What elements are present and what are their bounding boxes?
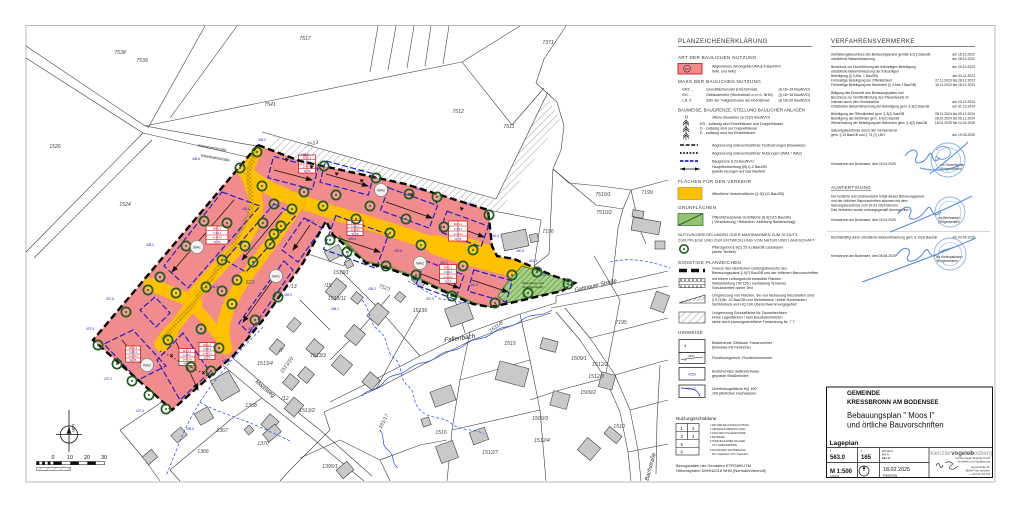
svg-text:W. 78: W. 78 — [352, 232, 359, 236]
svg-text:439.1: 439.1 — [306, 219, 314, 223]
svg-text:AUSFERTIGUNG: AUSFERTIGUNG — [831, 185, 871, 190]
svg-text:WA1 und WA2: WA1 und WA2 — [712, 70, 736, 74]
svg-text:7510/2: 7510/2 — [596, 210, 612, 216]
svg-text:Frühzeitige Beteiligung der Öf: Frühzeitige Beteiligung der Öffentlichke… — [831, 79, 892, 83]
svg-text:Der textliche und zeichnerisch: Der textliche und zeichnerische Inhalt d… — [831, 195, 925, 199]
svg-text:0.4 0.3: 0.4 0.3 — [203, 347, 211, 351]
svg-text:1513/3: 1513/3 — [310, 353, 326, 359]
svg-text:GEMEINDE: GEMEINDE — [847, 390, 880, 397]
svg-text:Beschluss zur Durchführung der: Beschluss zur Durchführung der frühzeiti… — [831, 65, 916, 69]
svg-text:offene Bauweise (§ 22(2) BauNV: offene Bauweise (§ 22(2) BauNVO) — [712, 116, 770, 120]
svg-text:mit einem Leitungsrecht belast: mit einem Leitungsrecht belastete Fläche… — [712, 277, 781, 281]
svg-text:7511: 7511 — [503, 124, 514, 130]
svg-text:1515: 1515 — [504, 341, 516, 347]
svg-text:Frühzeitige Beteiligung der Be: Frühzeitige Beteiligung der Behörden (§ … — [831, 83, 916, 87]
svg-text:WA2: WA2 — [416, 261, 424, 265]
svg-text:0.4 0.3: 0.4 0.3 — [183, 353, 191, 357]
svg-text:7517: 7517 — [299, 36, 312, 42]
svg-text:441.2: 441.2 — [529, 259, 537, 263]
svg-text:WA 1.1: WA 1.1 — [129, 346, 138, 350]
svg-text:438.6: 438.6 — [192, 157, 200, 161]
svg-text:WA1: WA1 — [193, 245, 201, 249]
svg-text:0.4 0.3: 0.4 0.3 — [213, 231, 221, 235]
svg-text:(teilweise mit Firsthöhe): (teilweise mit Firsthöhe) — [712, 346, 751, 350]
svg-text:(§ 16+19 BauNVO): (§ 16+19 BauNVO) — [779, 88, 810, 92]
svg-text:Ortsübliche Bekanntmachung der: Ortsübliche Bekanntmachung der Beteiligu… — [831, 105, 930, 109]
svg-text:0.4 0.3: 0.4 0.3 — [444, 270, 452, 274]
svg-text:4253: 4253 — [688, 373, 696, 377]
svg-text:am 23.10.2024: am 23.10.2024 — [952, 100, 975, 104]
svg-text:WA2: WA2 — [377, 188, 385, 192]
svg-text:E - zulässig sind nur Einzel: E - zulässig sind nur Einzelhäuser — [700, 131, 756, 135]
svg-text:0.4 0.3: 0.4 0.3 — [129, 350, 137, 354]
svg-text:Allgemeines Wohngebiet WA § 4: Allgemeines Wohngebiet WA § 4 BauNVO — [712, 65, 781, 69]
svg-text:BAUWEISE, BAUGRENZE, STELLUNG: BAUWEISE, BAUGRENZE, STELLUNG BAULICHER … — [678, 108, 805, 113]
svg-text:2+4 GH: 2+4 GH — [128, 354, 137, 358]
svg-text:Wasserleitung DN 150 / Gestatt: Wasserleitung DN 150 / Gestattung Terran… — [712, 282, 786, 286]
svg-text:7195: 7195 — [615, 320, 627, 326]
svg-text:Internet durch den Gemeinderat: Internet durch den Gemeinderat — [831, 100, 879, 104]
svg-text:Schutzstreifen siehe Text: Schutzstreifen siehe Text — [712, 286, 753, 290]
svg-text:1513/4: 1513/4 — [257, 361, 273, 367]
svg-text:0: 0 — [52, 455, 55, 461]
svg-text:440.6: 440.6 — [470, 283, 478, 287]
svg-text:7538: 7538 — [114, 50, 126, 56]
svg-text:Aufstellungsbeschluss des Beba: Aufstellungsbeschluss des Bebauungsplans… — [831, 53, 931, 57]
svg-text:PLANZEICHENERKLÄRUNG: PLANZEICHENERKLÄRUNG — [678, 38, 768, 45]
svg-text:438.8: 438.8 — [210, 285, 218, 289]
svg-text:4447: 4447 — [688, 354, 695, 358]
svg-text:WA 1.1: WA 1.1 — [454, 222, 463, 226]
svg-text:Umgrenzung von Flächen, die vo: Umgrenzung von Flächen, die von Bebauung… — [712, 294, 814, 298]
svg-text:7539: 7539 — [136, 58, 148, 64]
svg-text:438.2: 438.2 — [368, 287, 376, 291]
svg-text:(Bürgermeister): (Bürgermeister) — [936, 259, 958, 263]
svg-text:27.11.2023 bis 28.12.2023: 27.11.2023 bis 28.12.2023 — [935, 79, 975, 83]
svg-text:keine Lagerflächen / kein Baus: keine Lagerflächen / kein Baustellenbetr… — [712, 316, 783, 320]
svg-text:28.10.2024 bis 06.12.2024: 28.10.2024 bis 06.12.2024 — [935, 117, 975, 121]
svg-text:437.8: 437.8 — [106, 297, 114, 301]
svg-text:18.01.2025 bis 14.02.2025: 18.01.2025 bis 14.02.2025 — [935, 121, 975, 125]
svg-text:Wiederholung der Beteiligung d: Wiederholung der Beteiligung der Behörde… — [831, 121, 928, 125]
svg-text:WA1: WA1 — [272, 274, 280, 278]
svg-text:Grenze des räumlichen Geltungs: Grenze des räumlichen Geltungsbereichs d… — [712, 267, 787, 271]
svg-text:Architektur und Stadtplanung: Architektur und Stadtplanung — [958, 461, 991, 464]
svg-text:436.8: 436.8 — [186, 427, 194, 431]
svg-text:440.8: 440.8 — [516, 249, 524, 253]
svg-text:15136: 15136 — [413, 308, 428, 314]
svg-text:HINWEISE: HINWEISE — [678, 330, 703, 335]
svg-text:438.9: 438.9 — [301, 153, 309, 157]
svg-text:439.0: 439.0 — [258, 138, 266, 142]
svg-text:ortsübliche Bekanntmachung: ortsübliche Bekanntmachung — [831, 57, 875, 61]
svg-text:1512/2: 1512/2 — [592, 362, 608, 368]
svg-text:Baugrenze § 23 BauNVO: Baugrenze § 23 BauNVO — [712, 160, 754, 164]
svg-text:z.B. II: z.B. II — [682, 99, 691, 103]
svg-text:WA 1.1: WA 1.1 — [444, 265, 453, 269]
svg-text:WA: WA — [685, 67, 690, 71]
svg-text:0.9x0.8: 0.9x0.8 — [830, 474, 839, 478]
svg-text:NUTZUNGSREGELUNDEN ODER MASSNA: NUTZUNGSREGELUNDEN ODER MASSNAHMEN ZUM S… — [678, 232, 799, 237]
svg-text:1370: 1370 — [257, 441, 269, 447]
svg-text:Abgrenzung unterschiedlicher F: Abgrenzung unterschiedlicher Festsetzung… — [712, 144, 805, 148]
svg-text:1 ART DER BAULICHEN NUTZUNG: 1 ART DER BAULICHEN NUTZUNG — [710, 424, 749, 427]
svg-text:/15: /15 — [323, 283, 331, 289]
svg-text:1512/3: 1512/3 — [588, 374, 604, 380]
svg-text:1513/1: 1513/1 — [333, 270, 349, 276]
svg-text:Nutzungsschablone: Nutzungsschablone — [676, 416, 717, 421]
svg-text:1526: 1526 — [49, 144, 61, 150]
svg-text:und örtliche Bauvorschriften: und örtliche Bauvorschriften — [847, 421, 944, 430]
svg-text:Rechtskräftig durch ortsübli: Rechtskräftig durch ortsübliche Bekanntm… — [831, 236, 938, 240]
svg-text:MASS DER BAULICHEN NUTZUNG: MASS DER BAULICHEN NUTZUNG — [678, 79, 761, 84]
svg-text:öffentliche Verkehrsfläche (§: öffentliche Verkehrsfläche (§ 9(1)11 Bau… — [712, 192, 784, 196]
svg-text:siehe auch planungsrechtliche: siehe auch planungsrechtliche Festsetzun… — [712, 320, 795, 324]
svg-text:BEA W: BEA W — [882, 456, 891, 460]
svg-text:440.2: 440.2 — [440, 261, 448, 265]
svg-text:Das Verfahren wurde ordnungsge: Das Verfahren wurde ordnungsgemäß durchg… — [831, 208, 909, 212]
svg-text:437.9: 437.9 — [426, 297, 434, 301]
svg-text:Bestehendes Geländeniveau: Bestehendes Geländeniveau — [712, 370, 759, 374]
svg-text:GH ...: GH ... — [682, 93, 692, 97]
svg-text:1366: 1366 — [197, 449, 209, 455]
svg-text:GH = GEBÄUDEHÖHE: GH = GEBÄUDEHÖHE — [712, 444, 737, 447]
svg-text:16.11.2023 bis 18.12.2023: 16.11.2023 bis 18.12.2023 — [935, 83, 975, 87]
svg-text:(§ 16+20 BauNVO): (§ 16+20 BauNVO) — [779, 99, 810, 103]
svg-text:Billigung des Entwurfs des Beb: Billigung des Entwurfs des Bebauungsplan… — [831, 91, 904, 95]
svg-text:0.4 0.3: 0.4 0.3 — [454, 227, 462, 231]
svg-text:Gebäudehöhe (Höchstmaß in m ü: Gebäudehöhe (Höchstmaß in m ü. NHN) — [706, 93, 773, 97]
svg-text:WS N: WS N — [882, 453, 889, 457]
svg-text:W. 78: W. 78 — [445, 280, 452, 284]
svg-text:KRESSBRONN AM BODENSEE: KRESSBRONN AM BODENSEE — [847, 399, 939, 406]
svg-text:GRÜNFLÄCHEN: GRÜNFLÄCHEN — [678, 204, 716, 210]
svg-text:Beteiligung der Behörden gem.: Beteiligung der Behörden gem. § 4(2) Bau… — [831, 117, 900, 121]
svg-text:5 HÖHE BAULICHER ANLAGEN: 5 HÖHE BAULICHER ANLAGEN — [710, 440, 745, 443]
svg-text:7199: 7199 — [641, 190, 653, 196]
svg-text:Hauptfirstrichtung §9(1)-2: Hauptfirstrichtung §9(1)-2 BauGB — [712, 165, 767, 169]
svg-text:7510/1: 7510/1 — [595, 192, 611, 198]
svg-text:2+4 GH: 2+4 GH — [212, 236, 221, 240]
svg-text:1516: 1516 — [435, 430, 447, 436]
svg-text:Überflutungsfläche HQ 100: Überflutungsfläche HQ 100 — [712, 387, 756, 391]
svg-text:30: 30 — [101, 455, 107, 461]
svg-text:Bebauungsplans § 9(7) BauGB u: Bebauungsplans § 9(7) BauGB und der örtl… — [712, 271, 818, 275]
svg-text:1513/11: 1513/11 — [328, 296, 346, 302]
svg-text:1368: 1368 — [245, 403, 257, 409]
svg-text:523: 523 — [246, 280, 255, 286]
svg-text:439.2: 439.2 — [356, 169, 364, 173]
svg-text:§ 9 (1)Nr. 10 BauGB und Sichtd: § 9 (1)Nr. 10 BauGB und Sichtdreieck / k… — [712, 298, 807, 302]
svg-text:WA2: WA2 — [143, 363, 151, 367]
svg-text:441.0: 441.0 — [541, 273, 549, 277]
svg-text:W. 78: W. 78 — [130, 358, 137, 362]
svg-text:7541: 7541 — [264, 102, 276, 108]
svg-text:Beschluss zur Veröffentlichung: Beschluss zur Veröffentlichung des Plane… — [831, 96, 909, 100]
svg-text:0.4 0.3: 0.4 0.3 — [351, 224, 359, 228]
svg-text:Beteiligung (§ 3 Abs. 1 BauGB): Beteiligung (§ 3 Abs. 1 BauGB) — [831, 74, 878, 78]
svg-text:2 GRUNDFLÄCHENZAHL (GRZ): 2 GRUNDFLÄCHENZAHL (GRZ) — [710, 428, 745, 431]
svg-text:/13: /13 — [288, 284, 296, 290]
svg-text:am 19.03.2025: am 19.03.2025 — [952, 133, 975, 137]
svg-text:2+4 GH: 2+4 GH — [453, 232, 462, 236]
svg-text:3 ZAHL DER VOLLGESCHOSSE: 3 ZAHL DER VOLLGESCHOSSE — [710, 432, 746, 435]
svg-text:1509/1: 1509/1 — [571, 356, 587, 362]
svg-text:1512/7: 1512/7 — [482, 450, 499, 456]
svg-text:4 BAUWEISE: 4 BAUWEISE — [710, 436, 725, 439]
svg-text:Pflanzgebot § 9(1) 25 a) BauGB: Pflanzgebot § 9(1) 25 a) BauGB Laubbaum — [712, 246, 783, 250]
svg-text:10: 10 — [67, 455, 73, 461]
svg-text:440.1: 440.1 — [466, 202, 474, 206]
svg-text:2+4 GH: 2+4 GH — [350, 228, 359, 232]
svg-text:gem. § 10 BauGB und § 74 (7): gem. § 10 BauGB und § 74 (7) LBO — [831, 133, 885, 137]
svg-text:1524: 1524 — [119, 202, 131, 208]
svg-text:437.2: 437.2 — [104, 377, 112, 381]
svg-text:Bebauungsplan " Moos I": Bebauungsplan " Moos I" — [847, 411, 935, 420]
svg-text:WA 1.1: WA 1.1 — [183, 349, 192, 353]
svg-text:Umgrenzung Schutzfläche für Za: Umgrenzung Schutzfläche für Zauneidechse… — [712, 311, 787, 315]
svg-text:Zahl der Vollgeschosse als Höc: Zahl der Vollgeschosse als Höchstmaß — [706, 99, 770, 103]
svg-text:1513/2: 1513/2 — [299, 408, 315, 414]
svg-text:D - zulässig sind nur Doppel: D - zulässig sind nur Doppelhäuser — [700, 127, 758, 131]
svg-text:Satzungsbeschluss durch den Ge: Satzungsbeschluss durch den Gemeinderat — [831, 129, 897, 133]
svg-text:Flurstücksgrenze, Flurstücksnu: Flurstücksgrenze, Flurstücksnummer — [712, 356, 773, 360]
svg-text:am 31.10.2024: am 31.10.2024 — [952, 105, 975, 109]
svg-text:1510: 1510 — [613, 424, 625, 430]
svg-text:Satzungsbeschluss vom 19.03.20: Satzungsbeschluss vom 19.03.2025 überein… — [831, 204, 899, 208]
svg-text:440.4: 440.4 — [491, 234, 499, 238]
svg-text:Abgrenzung unterschiedlicher N: Abgrenzung unterschiedlicher Nutzungen (… — [712, 152, 802, 156]
svg-text:08.11.2024 bis 09.12.2024: 08.11.2024 bis 09.12.2024 — [935, 112, 975, 116]
svg-text:SONSTIGE PLANZEICHEN: SONSTIGE PLANZEICHEN — [678, 260, 741, 265]
svg-text:20: 20 — [84, 455, 90, 461]
svg-text:437.5: 437.5 — [86, 327, 94, 331]
svg-text:(§ 16+18 BauNVO): (§ 16+18 BauNVO) — [779, 93, 810, 97]
svg-text:FLÄCHEN FÜR DEN VERKEHR: FLÄCHEN FÜR DEN VERKEHR — [678, 178, 752, 184]
svg-text:100-jährliches Hochwasser: 100-jährliches Hochwasser — [712, 392, 757, 396]
svg-text:Lageplan: Lageplan — [830, 440, 859, 447]
svg-text:NOR: NOR — [71, 424, 75, 432]
svg-text:ART DER BAULICHEN NUTZUNG: ART DER BAULICHEN NUTZUNG — [678, 55, 757, 60]
svg-text:165: 165 — [861, 455, 872, 461]
svg-text:ortsübliche Bekanntmachung der: ortsübliche Bekanntmachung der frühzeiti… — [831, 70, 899, 74]
svg-text:1512/4: 1512/4 — [534, 438, 550, 444]
svg-text:438.0: 438.0 — [146, 243, 154, 247]
svg-text:7371: 7371 — [542, 40, 554, 46]
svg-text:WZ wkr.2: WZ wkr.2 — [882, 449, 893, 453]
svg-text:jeweils bezogen auf das Baufel: jeweils bezogen auf das Baufeld — [711, 170, 765, 174]
svg-text:439.0: 439.0 — [284, 293, 292, 297]
svg-text:438.6: 438.6 — [242, 207, 250, 211]
svg-text:W. 78: W. 78 — [455, 237, 462, 241]
svg-text:ED - zulässig sind Einzelhäuse: ED - zulässig sind Einzelhäuser und Dopp… — [700, 122, 784, 126]
svg-text:SD = Satteldach / FD = Flachda: SD = Satteldach / FD = Flachdach — [712, 453, 749, 456]
svg-text:Sichtdreieck und HQ 100 Über: Sichtdreieck und HQ 100 Überschwemmungsg… — [712, 303, 797, 307]
svg-text:7512: 7512 — [452, 109, 464, 115]
svg-text:Grundflächenzahl (Höchstmaß): Grundflächenzahl (Höchstmaß) — [706, 88, 757, 92]
svg-text:/12: /12 — [280, 396, 288, 402]
svg-text:W. 78: W. 78 — [204, 356, 211, 360]
svg-text:18.02.2025: 18.02.2025 — [883, 467, 910, 473]
svg-text:(Bürgermeister): (Bürgermeister) — [940, 167, 962, 171]
svg-text:Kressbronn am Bodensee, den 03: Kressbronn am Bodensee, den 03.04.2025 — [831, 162, 896, 166]
svg-text:(siehe Textteil): (siehe Textteil) — [712, 250, 736, 254]
svg-text:o: o — [685, 115, 688, 121]
svg-text:am 23.11.2023: am 23.11.2023 — [953, 74, 975, 78]
svg-text:439.6: 439.6 — [416, 187, 424, 191]
svg-text:1367: 1367 — [216, 428, 229, 434]
svg-text:Kressbronn am Bodensee, den 08: Kressbronn am Bodensee, den 08.08.2025 — [831, 254, 896, 258]
svg-text:7196: 7196 — [542, 229, 554, 235]
svg-text:W. 78: W. 78 — [214, 240, 221, 244]
svg-text:Beteiligung der Öffentlichkeit: Beteiligung der Öffentlichkeit gem. § 3(… — [831, 112, 905, 116]
svg-text:t. +49 134 720 153: t. +49 134 720 153 — [969, 473, 991, 476]
svg-text:2+4 GH: 2+4 GH — [182, 357, 191, 361]
svg-text:ZUR PFLEGE UND ZUR ENTWICKLUNG: ZUR PFLEGE UND ZUR ENTWICKLUNG VON NATUR… — [678, 238, 815, 243]
svg-text:2+4 GH: 2+4 GH — [443, 275, 452, 279]
svg-text:1509/2: 1509/2 — [580, 390, 596, 396]
svg-text:Bestehende Gebäude, Hausnummer: Bestehende Gebäude, Hausnummer — [712, 341, 773, 345]
svg-text:6 DACHFORM / DACHNEIGUNG: 6 DACHFORM / DACHNEIGUNG — [710, 449, 746, 452]
svg-text:am 25.10.2023: am 25.10.2023 — [952, 65, 975, 69]
svg-text:( Versickerung / Retention, Ab: ( Versickerung / Retention, Ableitung Ni… — [712, 220, 795, 224]
svg-text:HQ 100: HQ 100 — [686, 387, 696, 391]
svg-text:Öffentliche/private Grünfläch: Öffentliche/private Grünfläche (§ 9(1)15… — [712, 216, 791, 220]
svg-text:am 18.10.2022: am 18.10.2022 — [952, 53, 975, 57]
svg-text:1395/1: 1395/1 — [322, 464, 338, 470]
svg-text:439.4: 439.4 — [348, 237, 356, 241]
svg-text:W. 78: W. 78 — [304, 169, 311, 173]
svg-text:am 28.10.2022: am 28.10.2022 — [952, 57, 975, 61]
svg-text:438.4: 438.4 — [222, 359, 230, 363]
svg-text:Fassung: Fassung — [883, 474, 897, 478]
svg-text:Höhensystem DHHN2016 NHN (Norm: Höhensystem DHHN2016 NHN (Normalhöhennul… — [676, 468, 766, 473]
svg-text:437.0: 437.0 — [136, 409, 144, 413]
svg-text:WA 1.1: WA 1.1 — [203, 343, 212, 347]
svg-text:438.1: 438.1 — [331, 307, 339, 311]
svg-text:/7: /7 — [683, 358, 687, 362]
svg-text:563.0: 563.0 — [830, 455, 846, 461]
svg-text:Kressbronn am Bodensee, den 03: Kressbronn am Bodensee, den 03.04.2025 — [831, 218, 896, 222]
svg-text:439.8: 439.8 — [394, 249, 402, 253]
svg-text:GRZ ...: GRZ ... — [682, 88, 694, 92]
svg-text:VERFAHRENSVERMERKE: VERFAHRENSVERMERKE — [831, 38, 915, 45]
svg-text:2+4 GH: 2+4 GH — [202, 351, 211, 355]
svg-text:geplante Straßenhöhe: geplante Straßenhöhe — [712, 374, 749, 378]
svg-text:438.8: 438.8 — [248, 327, 256, 331]
svg-text:und der örtlichen Bauvorschrif: und der örtlichen Bauvorschriften stimme… — [831, 199, 908, 203]
svg-text:1509/3: 1509/3 — [532, 416, 548, 422]
svg-text:WA 1.1: WA 1.1 — [213, 227, 222, 231]
